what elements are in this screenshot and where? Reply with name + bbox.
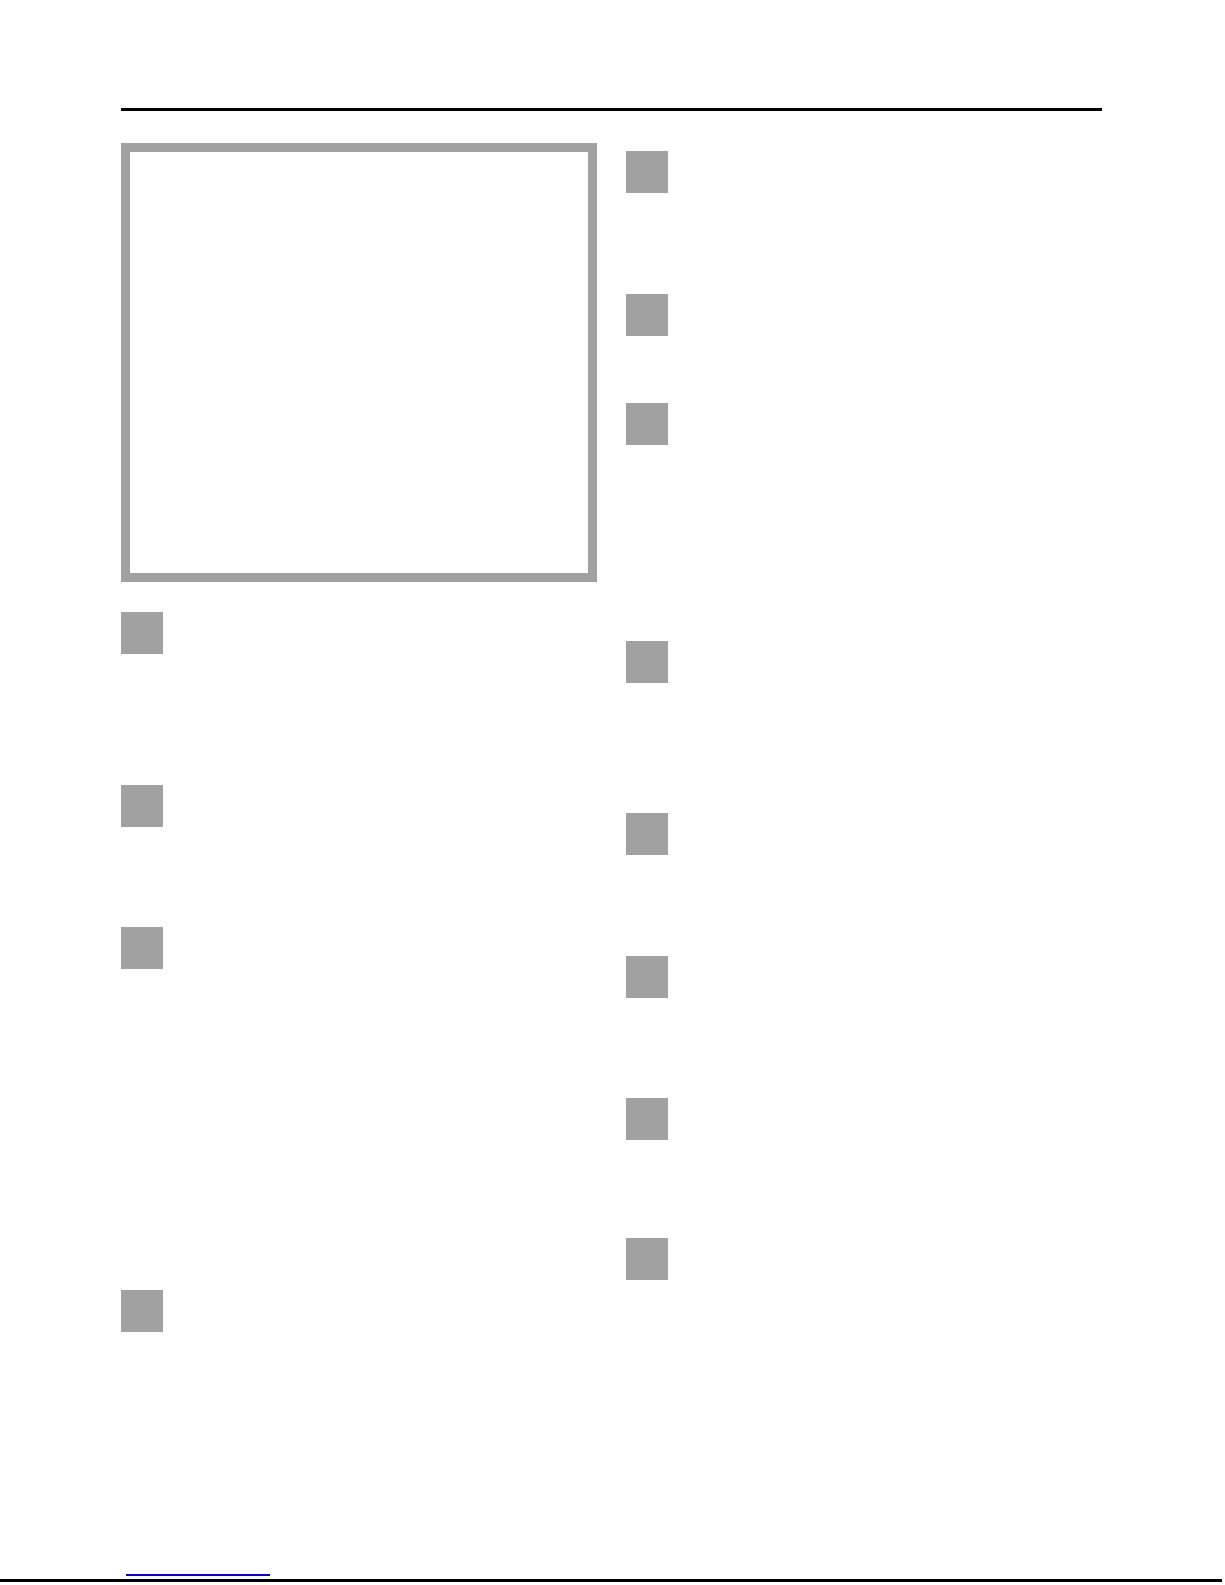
header-rule xyxy=(121,108,1102,111)
page-bottom-edge xyxy=(0,1579,1222,1582)
step-number-marker xyxy=(626,151,668,193)
step-number-marker xyxy=(121,612,163,654)
step-number-marker xyxy=(626,294,668,336)
document-page xyxy=(0,0,1225,1585)
step-number-marker xyxy=(626,956,668,998)
step-number-marker xyxy=(121,927,163,969)
step-number-marker xyxy=(626,1098,668,1140)
step-number-marker xyxy=(626,403,668,445)
footer-link[interactable] xyxy=(126,1574,270,1576)
step-number-marker xyxy=(626,1238,668,1280)
step-number-marker xyxy=(626,641,668,683)
step-number-marker xyxy=(121,1290,163,1332)
step-number-marker xyxy=(121,785,163,827)
step-number-marker xyxy=(626,813,668,855)
illustration-frame xyxy=(121,143,597,582)
